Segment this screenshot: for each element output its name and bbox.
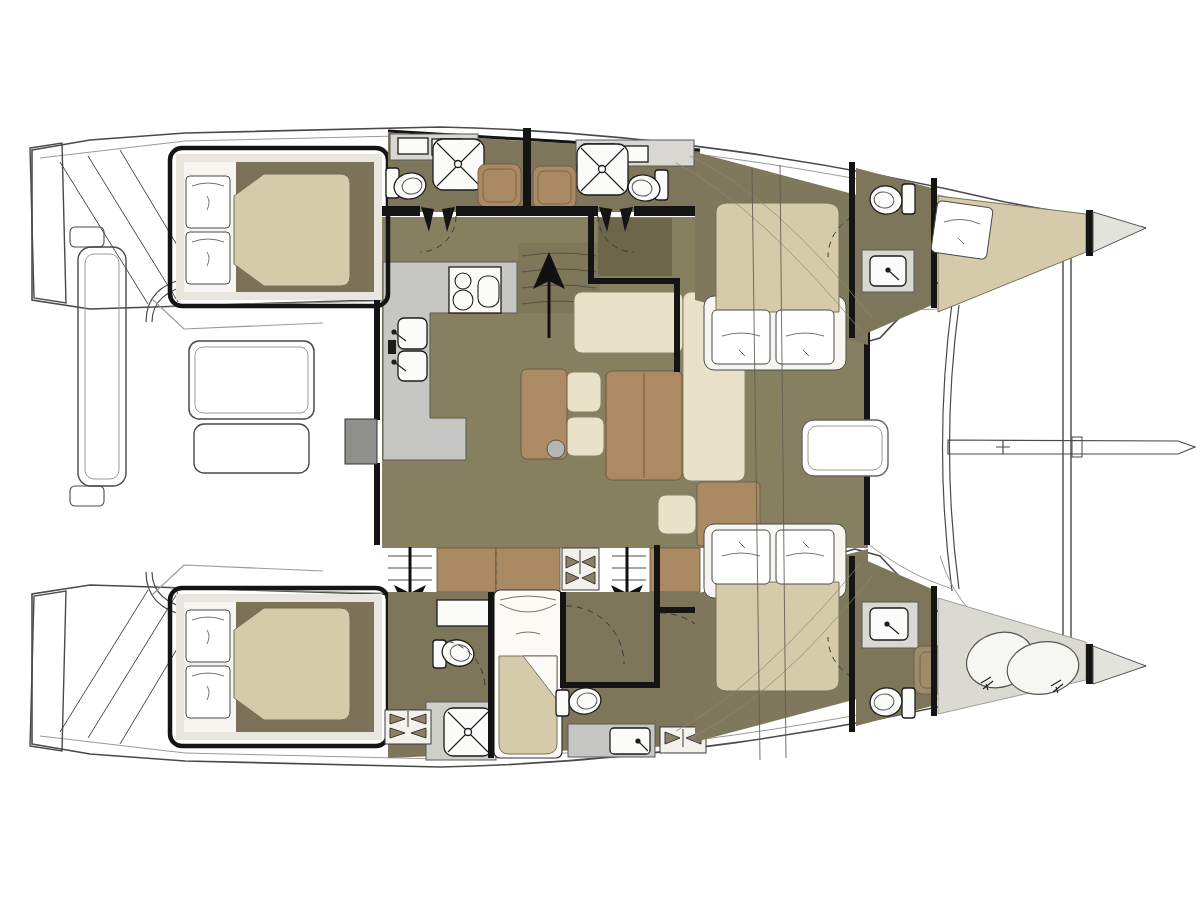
locker-1 [437,548,496,592]
locker-box [398,138,428,154]
vanity-right [533,166,576,209]
vent-hatch-aft [385,710,431,744]
faucet-knob-2 [391,359,396,364]
seat-cushion-1 [566,372,601,412]
pillow [186,176,230,228]
double-bed-mattress [234,608,350,720]
head-bulkhead-fwd [931,586,937,716]
shower-drain [465,729,472,736]
pillow [712,530,770,584]
vanity-forward-head [568,724,655,757]
vanity-left [478,164,521,207]
seat-cushion-2 [566,417,604,456]
toilet-tank [902,688,915,718]
basin [610,728,650,754]
shower-right [577,144,628,195]
aft-wall-upper [374,300,380,420]
sofa-top [574,292,683,353]
front-wall-lower [864,476,870,545]
locker-2 [496,548,560,592]
pillow [776,530,834,584]
starboard-aft-cabin [170,588,388,746]
shower-aft-head [426,702,496,760]
toilet-tank [902,184,915,214]
sliding-door-panel [345,419,377,464]
pillow [186,610,230,662]
sink-basin-2 [398,351,427,381]
double-bed-mattress [234,174,350,286]
bar-stool [547,440,565,458]
head-locker-band [437,600,489,626]
head-bulkhead-aft [849,162,855,338]
bow-bulkhead [1086,644,1093,684]
pillow [776,310,834,364]
stove [449,267,501,313]
pillow [931,200,994,259]
floor-plan-page: Catamaran yacht interior floor plan, top… [0,0,1200,899]
pillow [712,310,770,364]
pillow [186,232,230,284]
pillow [186,666,230,718]
ottoman-cushion [658,495,696,534]
aft-wall-lower [374,463,380,545]
floor-plan: Catamaran yacht interior floor plan, top… [0,0,1200,899]
toilet-tank [556,690,569,716]
sink-mount [388,340,396,354]
salon-forward-cabinet [598,218,672,276]
washbasin [862,602,918,648]
vent-hatch-salon [562,548,599,590]
sink-basin-1 [398,318,427,349]
bow-bulkhead [1086,210,1093,256]
washbasin [862,250,914,292]
port-aft-cabin [170,148,388,306]
bathroom-divider-wall [523,128,531,216]
faucet-knob-1 [391,329,396,334]
single-berth-cabin [494,590,562,758]
forward-door [802,420,888,476]
shower-drain [599,166,606,173]
shower-left [433,139,484,190]
head-bulkhead-aft [849,556,855,732]
shower-drain [455,161,462,168]
